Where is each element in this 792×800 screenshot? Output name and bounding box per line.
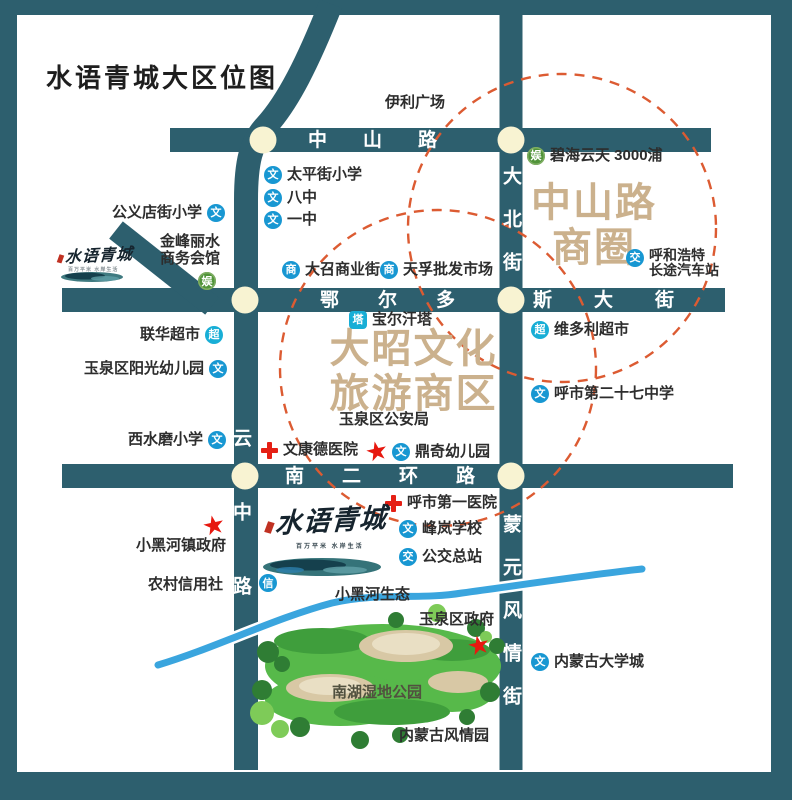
hospital-cross-icon: [261, 442, 278, 459]
entertainment-icon: 娱: [198, 272, 216, 290]
poi-label: 文康德医院: [283, 442, 358, 459]
supermarket-icon: 超: [205, 326, 223, 344]
poi-xishuimo-primary: 文 西水磨小学: [128, 431, 226, 449]
poi-bihai-yuntian: 娱 碧海云天 3000浦: [527, 147, 663, 165]
transit-icon: 交: [399, 548, 417, 566]
road-label-eerduosi-right: 斯大街: [533, 291, 716, 310]
school-icon: 文: [264, 166, 282, 184]
poi-label: 呼和浩特 长途汽车站: [649, 248, 719, 279]
page-title: 水语青城大区位图: [46, 58, 278, 95]
poi-no27-middle-school: 文 呼市第二十七中学: [531, 385, 674, 403]
dazhao-zone-label: 大昭文化 旅游商区: [326, 327, 501, 417]
brand-name: 水语青城: [65, 244, 134, 267]
district-line: 中山路: [520, 181, 668, 226]
poi-label: 公交总站: [422, 549, 482, 566]
logo-swoosh-small: [61, 272, 123, 282]
brand-logo-calligraphy: 水语青城: [58, 246, 134, 266]
poi-dazhao-commercial-street: 商 大召商业街: [282, 261, 380, 279]
school-icon: 文: [531, 653, 549, 671]
school-icon: 文: [209, 360, 227, 378]
tower-icon: 塔: [349, 311, 367, 329]
supermarket-icon: 超: [531, 321, 549, 339]
credit-icon: 信: [259, 574, 277, 592]
poi-label: 八中: [287, 190, 317, 207]
poi-yuquan-district-gov: 玉泉区政府: [419, 611, 494, 628]
poi-line: 长途汽车站: [649, 263, 719, 278]
poi-university-town: 文 内蒙古大学城: [531, 653, 644, 671]
poi-label: 宝尔汗塔: [372, 312, 432, 329]
poi-label: 内蒙古大学城: [554, 654, 644, 671]
poi-weiduoli-supermarket: 超 维多利超市: [531, 321, 629, 339]
map-frame: 水语青城大区位图 中山路 鄂尔多 斯大街 南二环路 大北街 云中路 蒙元风情街 …: [0, 0, 792, 800]
district-line: 大昭文化: [326, 327, 501, 372]
poi-label: 一中: [287, 212, 317, 229]
poi-yili-plaza: 伊利广场: [385, 94, 445, 111]
poi-line: 商务会馆: [160, 250, 220, 267]
seal-icon: [264, 521, 274, 534]
poi-gongyidianjie-primary: 文 公义店街小学: [112, 204, 225, 222]
school-icon: 文: [264, 189, 282, 207]
school-icon: 文: [208, 431, 226, 449]
school-icon: 文: [399, 520, 417, 538]
yuquan-gov-star-marker: ★: [465, 630, 493, 660]
poi-label: 呼市第二十七中学: [554, 386, 674, 403]
transit-icon: 交: [626, 249, 644, 267]
poi-no1-middle-school: 文 一中: [264, 211, 317, 229]
poi-label: 鼎奇幼儿园: [415, 444, 490, 461]
poi-label: 太平街小学: [287, 167, 362, 184]
road-label-yunzhong: 云中路: [231, 428, 250, 650]
poi-jinfeng-club: 金峰丽水 商务会馆: [160, 233, 220, 268]
school-icon: 文: [392, 443, 410, 461]
brand-tagline: 百万平米 水岸生活: [68, 266, 133, 273]
poi-label: 联华超市: [140, 327, 200, 344]
xiaoheihe-gov-star-marker: ★: [200, 510, 228, 540]
poi-nanhu-wetland-park: 南湖湿地公园: [332, 684, 422, 701]
brand-logo-big: 水语青城 百万平米 水岸生活: [266, 508, 387, 550]
project-star-marker: ★: [363, 436, 391, 466]
seal-icon: [57, 254, 65, 263]
school-icon: 文: [264, 211, 282, 229]
poi-no8-middle-school: 文 八中: [264, 189, 317, 207]
road-label-eerduosi-left: 鄂尔多: [320, 291, 494, 310]
brand-logo-small: 水语青城 百万平米 水岸生活: [58, 248, 133, 273]
poi-xiaoheihe-ecology: 小黑河生态: [335, 586, 410, 603]
road-label-zhongshan: 中山路: [308, 131, 473, 150]
poi-label: 峰岚学校: [422, 521, 482, 538]
commerce-icon: 商: [282, 261, 300, 279]
poi-label: 公义店街小学: [112, 205, 202, 222]
poi-longdistance-bus-station: 交 呼和浩特 长途汽车站: [626, 248, 719, 279]
poi-wenkangde-hospital: 文康德医院: [261, 442, 358, 459]
poi-taipingjie-primary: 文 太平街小学: [264, 166, 362, 184]
road-label-mengyuan: 蒙元风情街: [501, 514, 520, 729]
poi-bus-terminal: 交 公交总站: [399, 548, 482, 566]
poi-label: 碧海云天 3000浦: [550, 148, 663, 165]
poi-lianhua-supermarket: 超 联华超市: [140, 326, 223, 344]
poi-inner-mongolia-folklore-park: 内蒙古风情园: [399, 727, 489, 744]
poi-public-security-bureau: 玉泉区公安局: [339, 411, 429, 428]
brand-tagline: 百万平米 水岸生活: [296, 541, 387, 550]
commerce-icon: 商: [380, 261, 398, 279]
poi-fenglan-school: 文 峰岚学校: [399, 520, 482, 538]
brand-logo-calligraphy: 水语青城: [265, 505, 387, 538]
logo-swoosh-big: [263, 558, 381, 576]
poi-label: 呼市第一医院: [407, 495, 497, 512]
poi-label: 玉泉区阳光幼儿园: [84, 361, 204, 378]
poi-label: 天孚批发市场: [403, 262, 493, 279]
brand-name: 水语青城: [274, 503, 387, 540]
road-label-dabei: 大北街: [501, 166, 520, 295]
poi-line: 呼和浩特: [649, 248, 719, 263]
poi-yangguang-kindergarten: 文 玉泉区阳光幼儿园: [84, 360, 227, 378]
road-label-nanerhuan: 南二环路: [285, 467, 513, 486]
poi-label: 西水磨小学: [128, 432, 203, 449]
poi-label: 大召商业街: [305, 262, 380, 279]
poi-tianfu-wholesale-market: 商 天孚批发市场: [380, 261, 493, 279]
poi-rural-credit-union: 农村信用社: [148, 576, 223, 593]
poi-label: 维多利超市: [554, 322, 629, 339]
school-icon: 文: [531, 385, 549, 403]
poi-dingqi-kindergarten: 文 鼎奇幼儿园: [392, 443, 490, 461]
poi-line: 金峰丽水: [160, 233, 220, 250]
poi-first-hospital: 呼市第一医院: [385, 495, 497, 512]
poi-baoerhan-tower: 塔 宝尔汗塔: [349, 311, 432, 329]
entertainment-icon: 娱: [527, 147, 545, 165]
school-icon: 文: [207, 204, 225, 222]
